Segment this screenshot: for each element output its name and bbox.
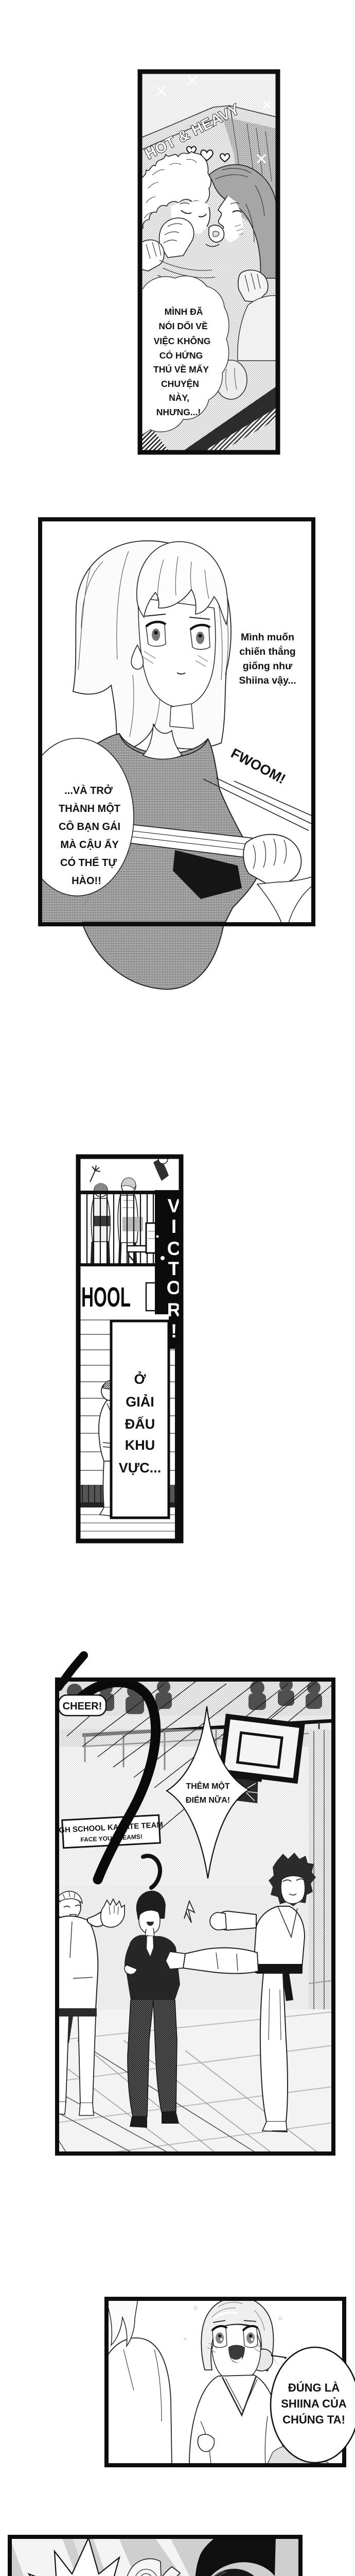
svg-text:...VÀ TRỞ: ...VÀ TRỞ: [64, 784, 113, 796]
svg-text:CHÚNG TA!: CHÚNG TA!: [282, 2413, 345, 2426]
svg-text:THÀNH MỘT: THÀNH MỘT: [59, 802, 120, 815]
svg-text:THÊM MỘT: THÊM MỘT: [186, 1781, 230, 1791]
svg-text:SHIINA CỦA: SHIINA CỦA: [281, 2397, 347, 2410]
svg-text:CHUYỆN: CHUYỆN: [161, 378, 199, 389]
svg-text:chiến thắng: chiến thắng: [239, 645, 295, 657]
svg-text:MÀ CẬU ẤY: MÀ CẬU ẤY: [60, 838, 119, 851]
svg-text:GIẢI: GIẢI: [126, 1393, 154, 1410]
svg-text:CÓ HỨNG: CÓ HỨNG: [159, 350, 203, 361]
svg-text:NÓI DỐI VỀ: NÓI DỐI VỀ: [158, 320, 207, 331]
svg-text:R: R: [167, 1299, 181, 1320]
svg-text:ĐÚNG LÀ: ĐÚNG LÀ: [288, 2381, 340, 2394]
svg-text:I: I: [171, 1216, 176, 1237]
svg-text:HOOL: HOOL: [81, 1282, 131, 1313]
svg-text:CHEER!: CHEER!: [63, 1701, 102, 1712]
svg-text:VIỆC KHÔNG: VIỆC KHÔNG: [154, 335, 211, 346]
svg-text:ĐẤU: ĐẤU: [125, 1416, 155, 1432]
svg-text:CÓ THỂ TỰ: CÓ THỂ TỰ: [60, 856, 117, 869]
svg-text:Ở: Ở: [134, 1370, 146, 1387]
svg-text:giống như: giống như: [243, 660, 293, 672]
svg-text:CÔ BẠN GÁI: CÔ BẠN GÁI: [59, 820, 120, 833]
svg-text:HÀO!!: HÀO!!: [72, 875, 101, 887]
svg-text:ĐIỂM NỮA!: ĐIỂM NỮA!: [186, 1794, 230, 1805]
svg-text:C: C: [167, 1238, 181, 1259]
svg-text:!: !: [171, 1320, 177, 1342]
svg-text:THÚ VỀ MẤY: THÚ VỀ MẤY: [153, 364, 209, 375]
svg-text:Shiina vậy...: Shiina vậy...: [239, 675, 296, 686]
svg-text:VỰC...: VỰC...: [119, 1460, 161, 1476]
svg-text:T: T: [168, 1258, 180, 1279]
svg-text:NHƯNG...!: NHƯNG...!: [156, 407, 201, 417]
svg-text:V: V: [168, 1195, 181, 1216]
svg-text:Mình muốn: Mình muốn: [241, 632, 294, 643]
svg-text:MÌNH ĐÃ: MÌNH ĐÃ: [165, 306, 203, 317]
svg-text:KHU: KHU: [125, 1437, 155, 1453]
svg-text:NÀY,: NÀY,: [169, 392, 189, 403]
